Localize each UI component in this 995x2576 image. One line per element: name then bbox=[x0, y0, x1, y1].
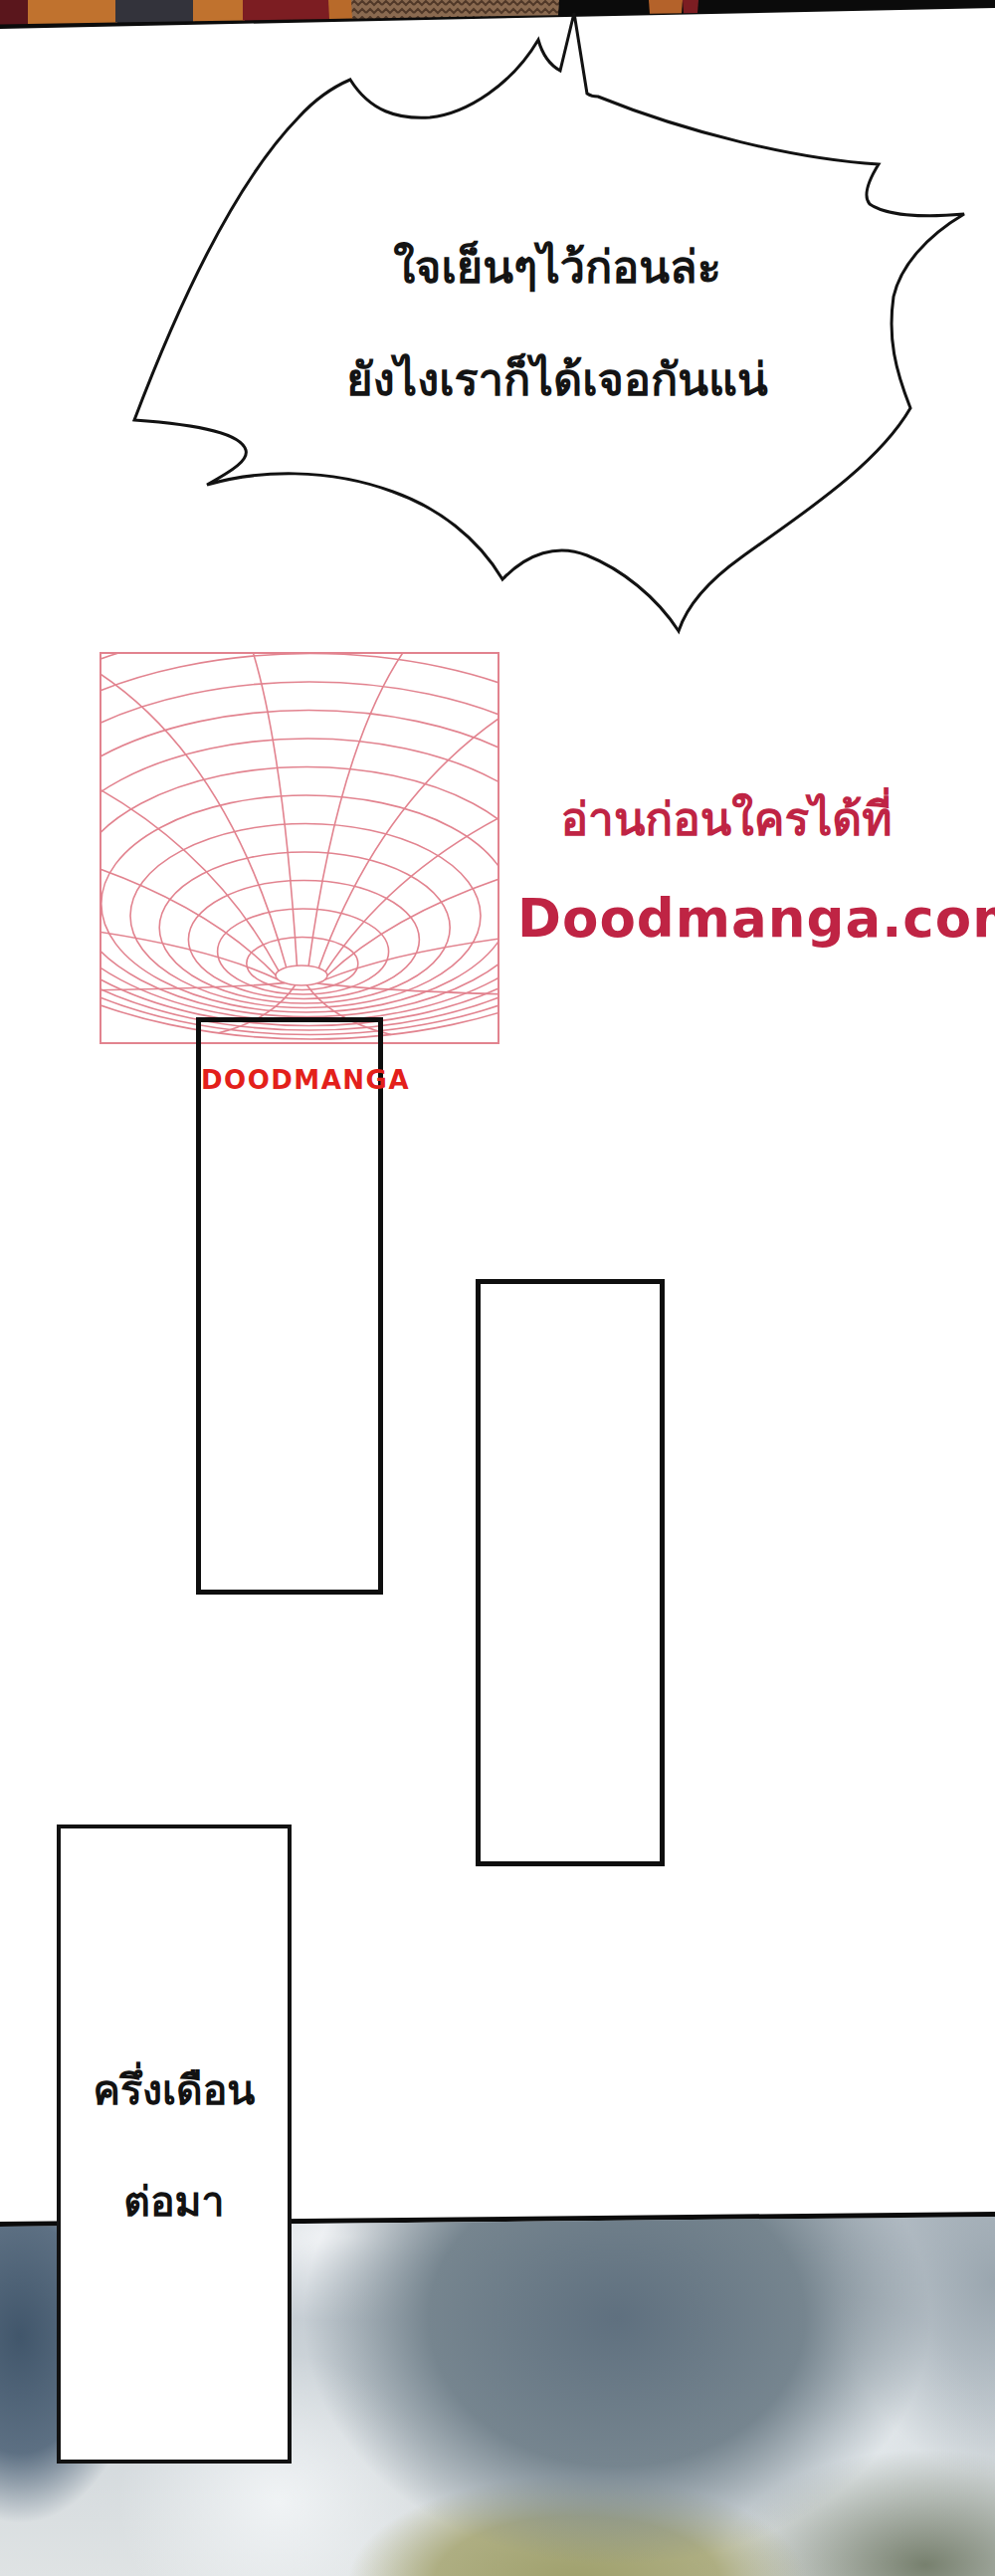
vortex-grid-drawing bbox=[99, 652, 499, 1044]
speech-line-2: ยังไงเราก็ได้เจอกันแน่ bbox=[308, 323, 806, 436]
caption-line-2: ต่อมา bbox=[57, 2146, 292, 2257]
watermark-text: DOODMANGA bbox=[201, 1065, 378, 1095]
promo-text-thai: อ่านก่อนใครได้ที่ bbox=[517, 782, 935, 855]
empty-panel-left bbox=[196, 1017, 383, 1595]
caption-text: ครึ่งเดือน ต่อมา bbox=[57, 2035, 292, 2257]
speech-line-1: ใจเย็นๆไว้ก่อนล่ะ bbox=[308, 211, 806, 323]
caption-line-1: ครึ่งเดือน bbox=[57, 2035, 292, 2146]
empty-panel-right bbox=[476, 1279, 665, 1866]
promo-site-url: Doodmanga.com bbox=[517, 888, 935, 949]
speech-bubble-text: ใจเย็นๆไว้ก่อนล่ะ ยังไงเราก็ได้เจอกันแน่ bbox=[308, 211, 806, 436]
comic-page: ใจเย็นๆไว้ก่อนล่ะ ยังไงเราก็ได้เจอกันแน่… bbox=[0, 0, 995, 2576]
